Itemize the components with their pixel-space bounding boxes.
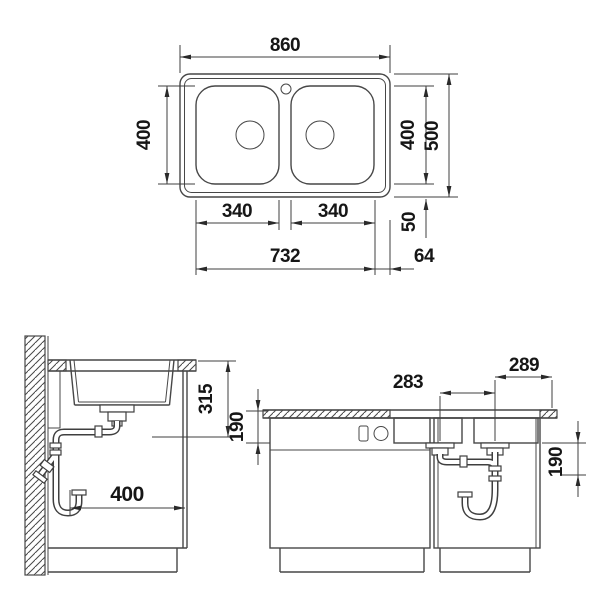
top-view-diagram: 860 400 400 500 50 (134, 35, 458, 275)
wall-mount-rail (48, 371, 60, 428)
worktop-front (263, 410, 557, 418)
dim-drain-spacing-label: 283 (393, 372, 423, 393)
sink-cabinet-front (434, 418, 540, 548)
sink-profile (70, 360, 174, 405)
plinth-front (280, 548, 530, 572)
dim-overall-depth-label: 500 (422, 121, 443, 151)
sink-outline (180, 74, 390, 197)
dim-overall-width-label: 860 (270, 35, 300, 56)
dim-drain-to-edge: 289 (495, 355, 552, 408)
dim-rear-gap: 50 (399, 199, 428, 238)
wall-section (25, 336, 45, 575)
dim-edge-offset: 64 (375, 246, 435, 271)
dim-cabinet-depth: 400 (70, 483, 185, 516)
dim-bowl-width-left-label: 340 (222, 201, 252, 222)
drain-right (306, 121, 334, 149)
front-view-diagram: 283 289 190 190 (227, 355, 586, 572)
side-view-diagram: 315 400 (25, 336, 236, 575)
dishwasher-front (270, 418, 430, 548)
dim-rear-gap-label: 50 (399, 212, 420, 232)
dim-inner-depth-label: 400 (398, 120, 419, 150)
bowl-front-right (474, 418, 538, 443)
faucet-hole (281, 84, 291, 94)
dim-cabinet-depth-label: 400 (110, 483, 144, 506)
plinth-side (48, 548, 177, 572)
dim-bowl-depth-label: 190 (227, 412, 248, 442)
dim-worktop-clearance: 315 (152, 361, 236, 437)
dim-cutout-width-label: 732 (270, 246, 300, 267)
cabinet-front-side (48, 371, 187, 572)
bowl-front-left (394, 418, 462, 443)
dim-trap-clearance: 190 (542, 421, 586, 497)
dim-bowl-length-label: 400 (134, 120, 155, 150)
drain-left (236, 121, 264, 149)
trap-front (440, 452, 501, 517)
bowl-right (291, 86, 374, 184)
dim-edge-offset-label: 64 (414, 246, 435, 267)
dim-overall-width: 860 (180, 35, 390, 73)
dishwasher-controls (359, 426, 388, 441)
dim-bowl-depth: 190 (227, 389, 270, 465)
dim-drain-spacing: 283 (393, 372, 495, 441)
dim-bowl-width-right-label: 340 (318, 201, 348, 222)
dim-drain-to-edge-label: 289 (509, 355, 539, 376)
bowl-left (196, 86, 279, 184)
dim-bowl-length: 400 (134, 86, 195, 184)
dim-trap-clearance-label: 190 (546, 447, 567, 477)
dim-worktop-clearance-label: 315 (196, 383, 217, 414)
sink-installation-drawing: 860 400 400 500 50 (0, 0, 600, 590)
sink-inner-rim (185, 79, 386, 193)
dim-cutout-width: 732 (196, 246, 375, 271)
